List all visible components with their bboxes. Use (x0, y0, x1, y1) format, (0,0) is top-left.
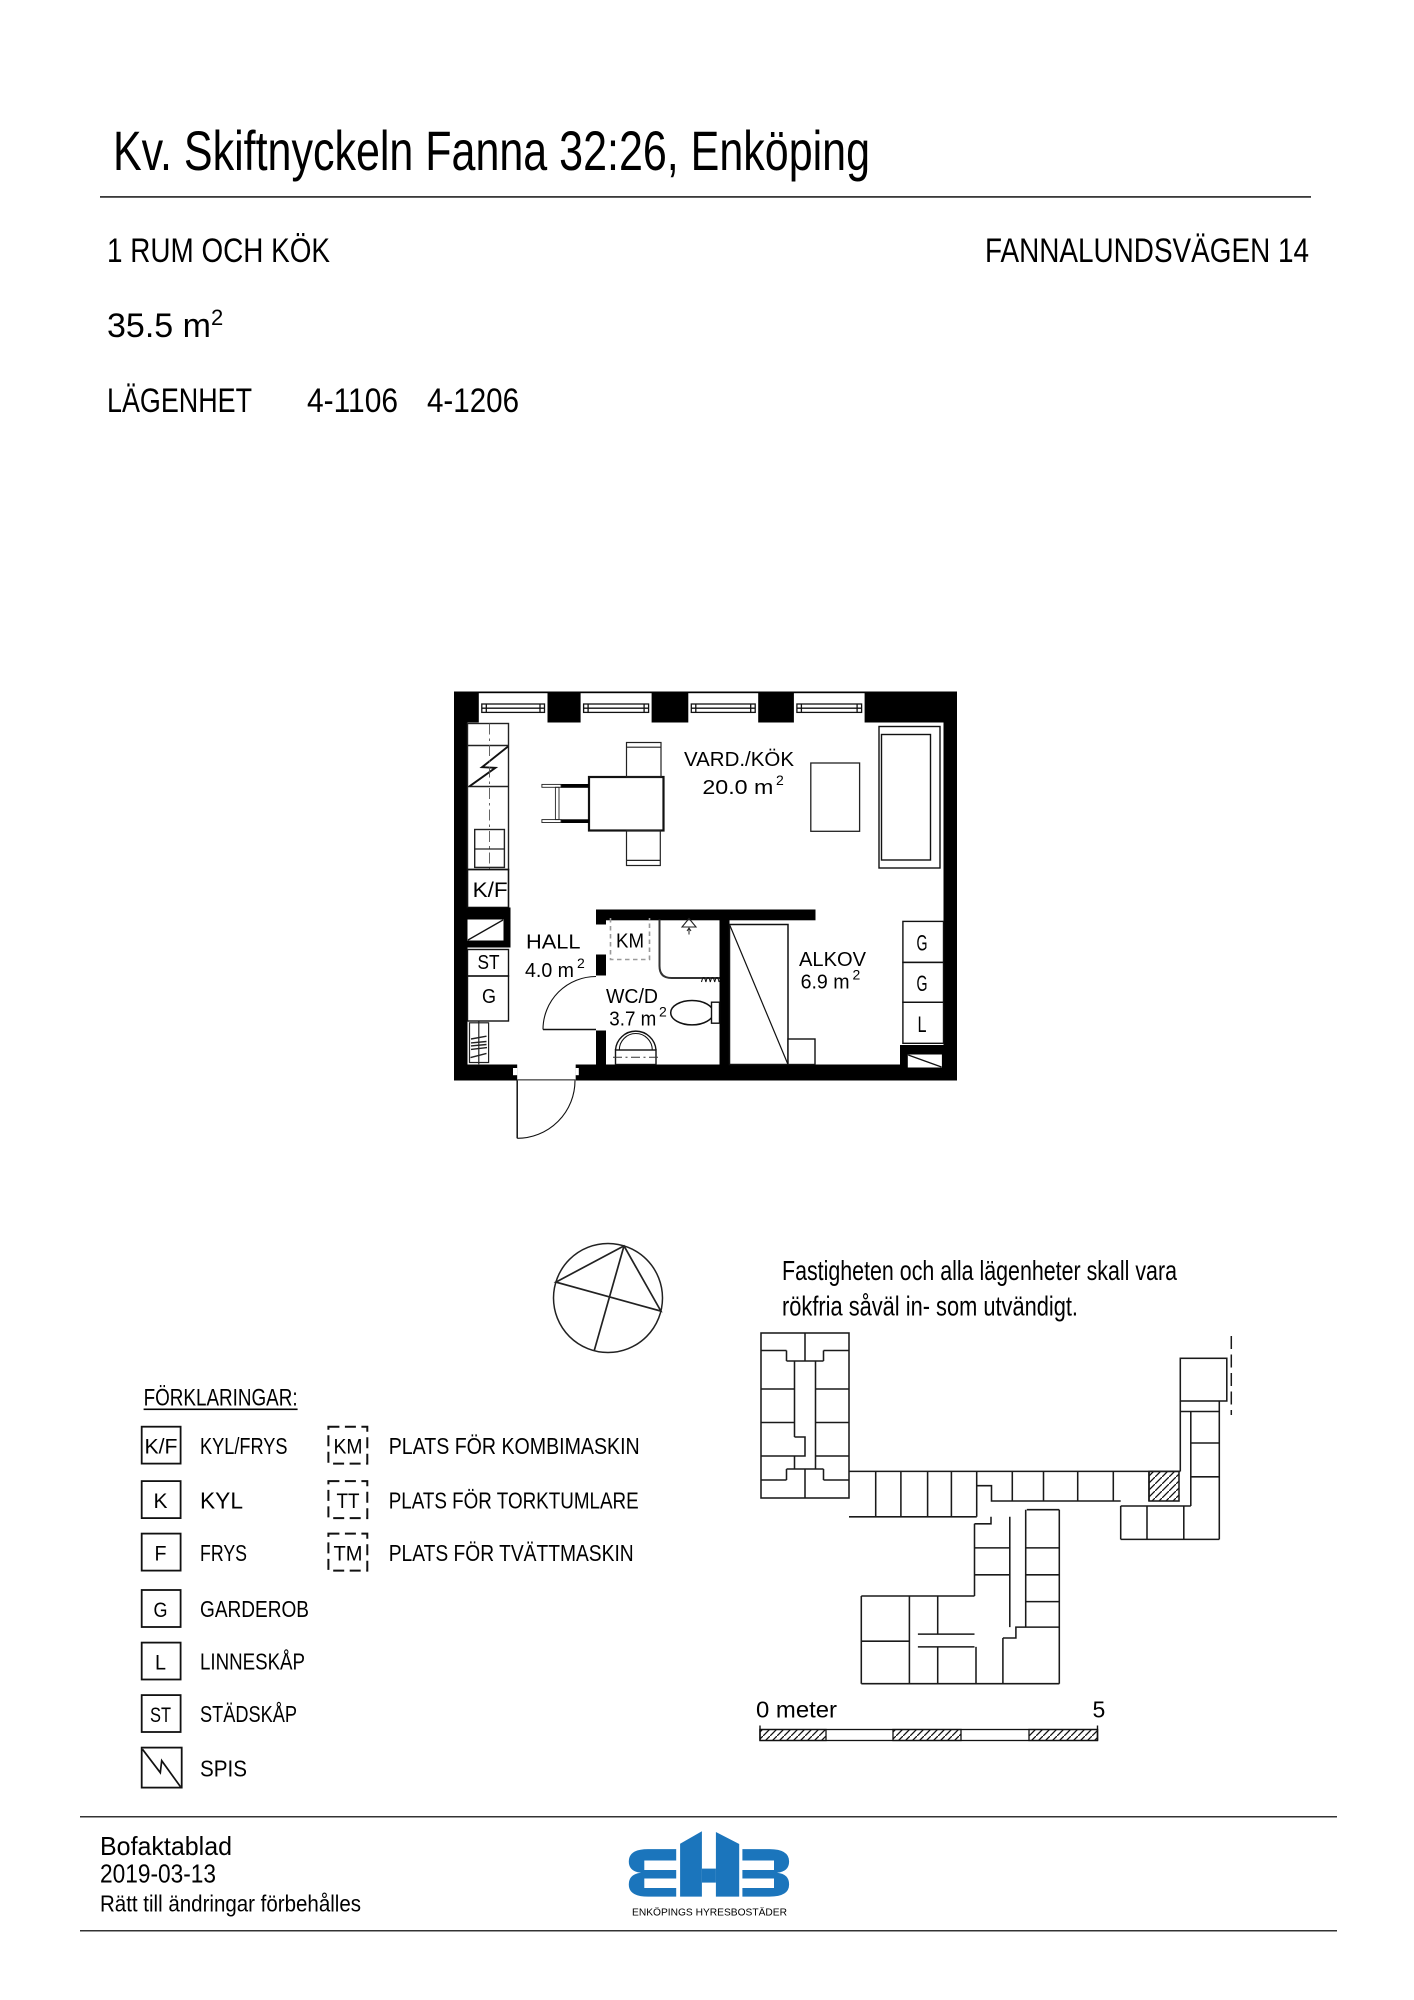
svg-text:PLATS FÖR TORKTUMLARE: PLATS FÖR TORKTUMLARE (389, 1487, 639, 1513)
svg-text:2: 2 (776, 772, 784, 788)
svg-text:LINNESKÅP: LINNESKÅP (200, 1648, 305, 1675)
svg-text:KYL/FRYS: KYL/FRYS (200, 1433, 288, 1459)
svg-text:LÄGENHET: LÄGENHET (107, 382, 252, 420)
svg-text:2: 2 (659, 1004, 667, 1020)
svg-text:GARDEROB: GARDEROB (200, 1596, 309, 1622)
svg-text:4.0 m: 4.0 m (525, 960, 574, 982)
svg-text:G: G (917, 931, 928, 956)
svg-text:ST: ST (478, 952, 500, 974)
svg-text:Bofaktablad: Bofaktablad (100, 1831, 232, 1861)
svg-text:TM: TM (334, 1543, 363, 1566)
svg-text:G: G (917, 971, 928, 996)
svg-text:STÄDSKÅP: STÄDSKÅP (200, 1700, 297, 1727)
svg-text:20.0 m: 20.0 m (702, 777, 773, 799)
svg-text:SPIS: SPIS (200, 1755, 247, 1781)
svg-text:KM: KM (334, 1436, 363, 1459)
svg-text:0 meter: 0 meter (756, 1697, 837, 1723)
svg-text:PLATS FÖR KOMBIMASKIN: PLATS FÖR KOMBIMASKIN (389, 1433, 640, 1459)
svg-text:L: L (155, 1652, 166, 1675)
svg-text:ENKÖPINGS HYRESBOSTÄDER: ENKÖPINGS HYRESBOSTÄDER (632, 1907, 787, 1919)
svg-text:KM: KM (616, 931, 644, 953)
svg-text:rökfria såväl in- som utvändig: rökfria såväl in- som utvändigt. (782, 1291, 1078, 1322)
svg-text:35.5 m2: 35.5 m2 (107, 305, 223, 345)
svg-text:2: 2 (853, 967, 861, 983)
svg-text:FANNALUNDSVÄGEN 14: FANNALUNDSVÄGEN 14 (985, 232, 1309, 270)
svg-text:Rätt till ändringar förbehålle: Rätt till ändringar förbehålles (100, 1891, 361, 1917)
svg-text:4-1206: 4-1206 (427, 382, 519, 420)
svg-text:FÖRKLARINGAR:: FÖRKLARINGAR: (144, 1385, 298, 1412)
svg-text:PLATS FÖR TVÄTTMASKIN: PLATS FÖR TVÄTTMASKIN (389, 1540, 634, 1566)
svg-text:VARD./KÖK: VARD./KÖK (684, 749, 795, 771)
svg-text:KYL: KYL (200, 1487, 243, 1513)
svg-text:K/F: K/F (145, 1436, 178, 1459)
svg-text:2019-03-13: 2019-03-13 (100, 1859, 216, 1889)
svg-text:TT: TT (337, 1490, 360, 1513)
svg-text:3.7 m: 3.7 m (609, 1009, 656, 1031)
svg-text:F: F (155, 1543, 167, 1566)
svg-text:4-1106: 4-1106 (307, 382, 398, 420)
svg-text:G: G (482, 986, 496, 1008)
svg-text:WC/D: WC/D (606, 986, 658, 1008)
svg-text:HALL: HALL (526, 932, 581, 954)
svg-text:1 RUM OCH KÖK: 1 RUM OCH KÖK (107, 232, 330, 270)
svg-text:5: 5 (1093, 1697, 1106, 1723)
svg-text:Kv. Skiftnyckeln Fanna 32:26,: Kv. Skiftnyckeln Fanna 32:26, Enköping (113, 119, 870, 182)
svg-text:L: L (918, 1012, 927, 1037)
svg-text:Fastigheten och alla lägenhete: Fastigheten och alla lägenheter skall va… (782, 1255, 1177, 1286)
svg-text:FRYS: FRYS (200, 1540, 247, 1566)
svg-text:K: K (154, 1490, 168, 1513)
svg-text:6.9 m: 6.9 m (801, 972, 850, 994)
svg-text:K/F: K/F (473, 879, 508, 902)
svg-text:G: G (154, 1599, 168, 1622)
svg-text:ST: ST (150, 1704, 171, 1727)
svg-text:2: 2 (577, 955, 585, 971)
